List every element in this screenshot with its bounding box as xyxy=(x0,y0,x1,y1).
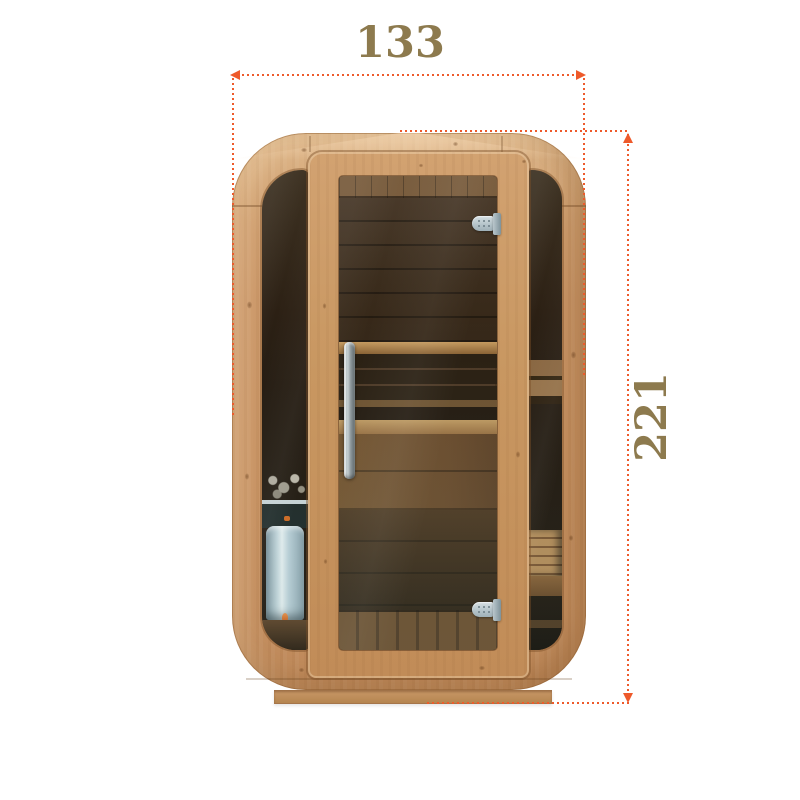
hinge-screws xyxy=(478,220,480,222)
roof-joint-right xyxy=(501,136,503,152)
hinge-bracket xyxy=(493,599,501,621)
door-handle xyxy=(344,342,355,479)
height-extension-line-top xyxy=(400,130,629,132)
width-arrow-left-icon xyxy=(230,70,240,80)
height-arrow-down-icon xyxy=(623,693,633,703)
door-glass-reflection xyxy=(339,176,497,650)
product-dimension-image: 133 221 xyxy=(0,0,800,800)
width-arrow-right-icon xyxy=(576,70,586,80)
hinge-plate xyxy=(472,602,494,617)
height-arrow-up-icon xyxy=(623,133,633,143)
left-side-window xyxy=(262,170,310,650)
glass-reflection-right xyxy=(526,170,562,650)
hinge-screws xyxy=(478,606,480,608)
frame-seam-left xyxy=(232,205,262,207)
width-extension-line-right xyxy=(583,78,585,376)
height-dimension-label: 221 xyxy=(622,347,682,487)
door-glass xyxy=(339,176,497,650)
roof-joint-left xyxy=(309,136,311,152)
width-extension-line-left xyxy=(232,78,234,418)
glass-reflection-left xyxy=(262,170,310,650)
frame-seam-right xyxy=(558,205,586,207)
door-hinge-bottom xyxy=(472,599,502,621)
hinge-bracket xyxy=(493,213,501,235)
height-extension-line-bottom xyxy=(427,702,629,704)
door-hinge-top xyxy=(472,213,502,235)
width-dimension-line xyxy=(232,74,585,76)
right-side-window xyxy=(526,170,562,650)
frame-seam-bottom xyxy=(246,678,572,680)
hinge-plate xyxy=(472,216,494,231)
width-dimension-label: 133 xyxy=(340,22,460,65)
